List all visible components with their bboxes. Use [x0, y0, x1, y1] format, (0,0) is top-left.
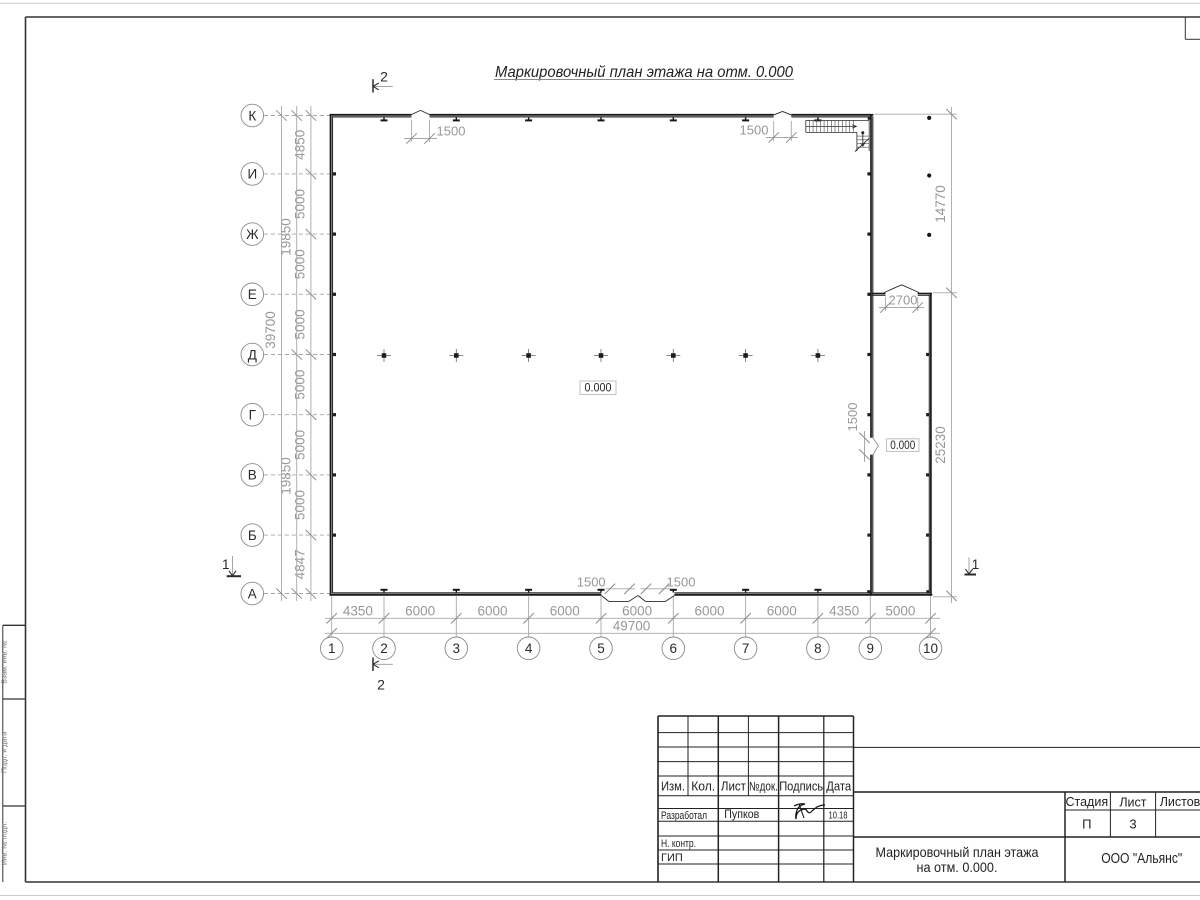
svg-text:А: А [248, 586, 257, 601]
svg-text:на отм. 0.000.: на отм. 0.000. [917, 859, 998, 875]
svg-text:5000: 5000 [885, 603, 915, 618]
svg-text:4350: 4350 [829, 603, 859, 618]
svg-text:1500: 1500 [845, 403, 860, 432]
svg-text:10.18: 10.18 [829, 809, 848, 821]
svg-text:Пупков: Пупков [724, 807, 759, 821]
svg-text:Лист: Лист [1119, 796, 1146, 810]
svg-text:ООО "Альянс": ООО "Альянс" [1101, 851, 1182, 867]
svg-text:1: 1 [222, 557, 230, 572]
svg-text:2700: 2700 [889, 293, 918, 308]
svg-text:Лист: Лист [721, 780, 746, 794]
svg-text:Б: Б [248, 528, 257, 543]
svg-text:Н. контр.: Н. контр. [661, 838, 696, 850]
svg-text:4350: 4350 [343, 603, 373, 618]
svg-text:3: 3 [1129, 817, 1136, 832]
svg-text:5000: 5000 [293, 189, 308, 219]
svg-text:6000: 6000 [694, 603, 724, 618]
svg-text:№док.: №док. [749, 780, 778, 794]
svg-text:Листов: Листов [1160, 795, 1200, 809]
svg-text:2: 2 [380, 69, 388, 85]
svg-text:3: 3 [453, 641, 461, 656]
svg-text:В: В [248, 468, 257, 483]
svg-text:10: 10 [923, 641, 938, 656]
svg-text:Подп. и дата: Подп. и дата [2, 732, 9, 773]
svg-text:Д: Д [248, 347, 257, 362]
svg-text:Разработал: Разработал [661, 810, 707, 822]
svg-text:П: П [1082, 817, 1091, 832]
svg-text:1500: 1500 [667, 575, 696, 590]
svg-text:Изм.: Изм. [661, 780, 685, 794]
svg-text:Подпись: Подпись [779, 780, 823, 794]
svg-text:14770: 14770 [933, 185, 948, 223]
svg-text:6000: 6000 [767, 603, 797, 618]
svg-text:1: 1 [972, 557, 980, 572]
svg-text:И: И [247, 167, 257, 182]
svg-text:Взам. инв. №: Взам. инв. № [2, 640, 9, 683]
svg-text:2: 2 [380, 641, 388, 656]
svg-text:1500: 1500 [577, 575, 606, 590]
svg-text:39700: 39700 [263, 311, 278, 349]
svg-text:Г: Г [249, 408, 257, 423]
svg-text:К: К [248, 108, 256, 123]
svg-text:5000: 5000 [293, 430, 308, 460]
svg-text:Инв. № подл.: Инв. № подл. [2, 822, 9, 866]
svg-text:7: 7 [742, 641, 750, 656]
svg-text:4: 4 [525, 641, 533, 656]
svg-text:4847: 4847 [293, 549, 308, 579]
svg-text:Стадия: Стадия [1065, 795, 1108, 809]
svg-text:6000: 6000 [477, 603, 507, 618]
svg-text:5000: 5000 [293, 370, 308, 400]
svg-text:Ж: Ж [246, 227, 259, 242]
svg-text:4850: 4850 [293, 130, 308, 160]
svg-text:ГИП: ГИП [661, 852, 683, 864]
svg-text:9: 9 [867, 641, 875, 656]
svg-text:19850: 19850 [278, 218, 293, 256]
svg-text:6000: 6000 [622, 603, 652, 618]
svg-text:Кол.: Кол. [691, 780, 715, 794]
svg-text:1500: 1500 [437, 124, 466, 139]
svg-text:25230: 25230 [933, 426, 948, 464]
svg-text:0.000: 0.000 [890, 440, 915, 452]
svg-text:8: 8 [814, 641, 822, 656]
svg-text:1: 1 [328, 641, 336, 656]
svg-text:Дата: Дата [826, 780, 851, 794]
svg-text:1500: 1500 [740, 123, 769, 138]
svg-text:49700: 49700 [613, 618, 651, 633]
svg-text:5: 5 [597, 641, 605, 656]
svg-text:6000: 6000 [405, 603, 435, 618]
svg-text:19850: 19850 [278, 457, 293, 495]
svg-text:6000: 6000 [550, 603, 580, 618]
svg-text:5000: 5000 [293, 309, 308, 339]
svg-text:Маркировочный план этажа на от: Маркировочный план этажа на отм. 0.000 [495, 64, 793, 81]
svg-text:6: 6 [670, 641, 678, 656]
svg-text:Маркировочный план этажа: Маркировочный план этажа [876, 844, 1039, 860]
svg-text:0.000: 0.000 [585, 381, 612, 395]
svg-text:Е: Е [248, 287, 257, 302]
svg-text:2: 2 [377, 677, 385, 693]
svg-text:5000: 5000 [293, 490, 308, 520]
svg-text:5000: 5000 [293, 249, 308, 279]
